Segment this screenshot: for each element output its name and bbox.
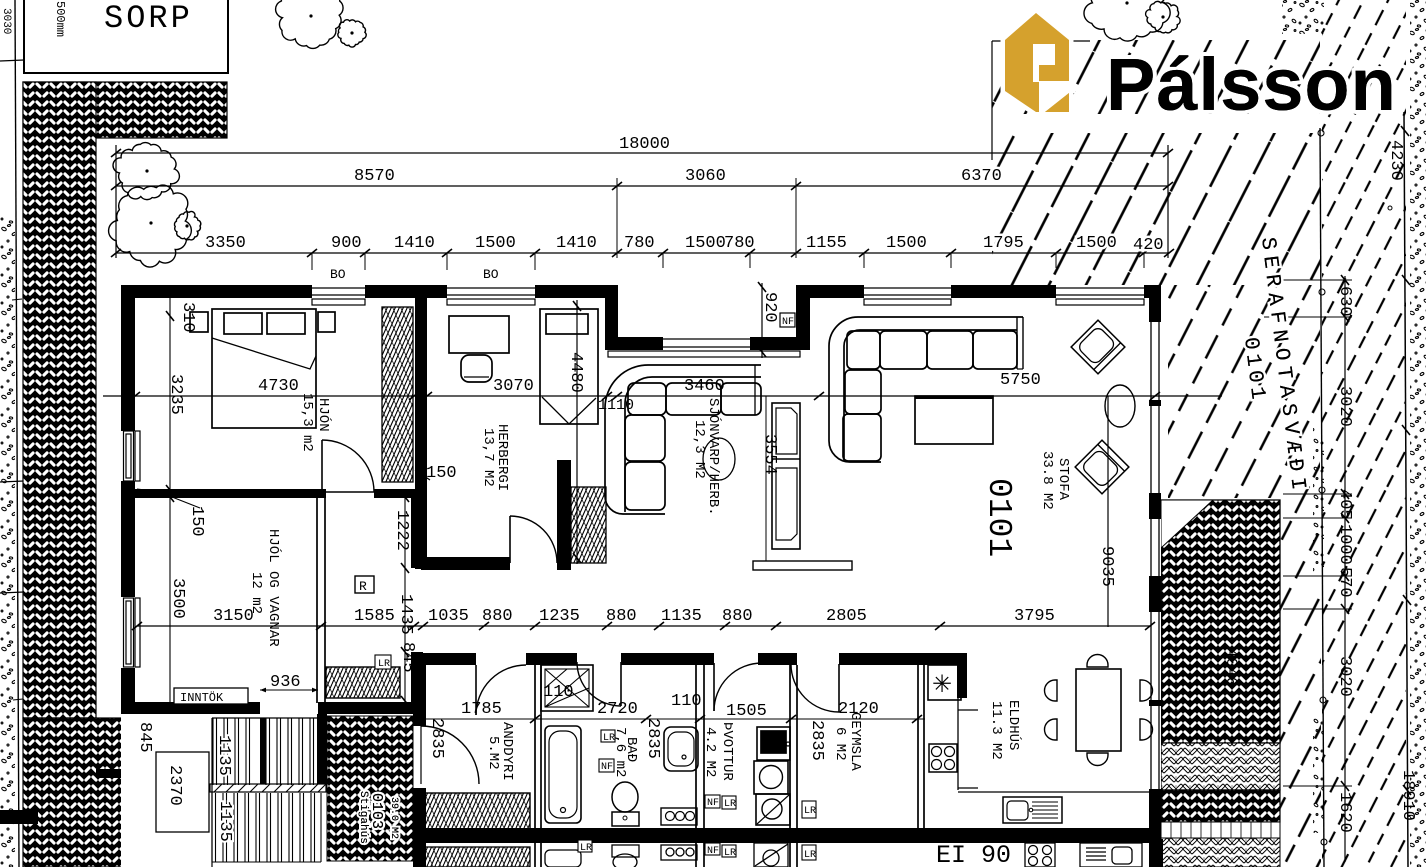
svg-text:3070: 3070	[493, 377, 534, 396]
svg-text:1620: 1620	[1335, 792, 1354, 833]
svg-text:1585: 1585	[354, 607, 395, 626]
svg-text:1410: 1410	[556, 234, 597, 253]
svg-text:4730: 4730	[258, 377, 299, 396]
svg-text:420: 420	[1133, 236, 1164, 255]
svg-text:845: 845	[135, 722, 154, 753]
svg-text:LR: LR	[724, 799, 736, 810]
svg-text:ÞVOTTUR: ÞVOTTUR	[719, 722, 735, 781]
svg-text:33.8 M2: 33.8 M2	[1039, 451, 1055, 510]
svg-text:18000: 18000	[619, 135, 670, 154]
svg-text:9035: 9035	[1097, 546, 1116, 587]
svg-text:150: 150	[187, 506, 206, 537]
svg-text:2835: 2835	[427, 718, 446, 759]
svg-text:1035: 1035	[428, 607, 469, 626]
svg-text:3350: 3350	[205, 234, 246, 253]
svg-text:1135: 1135	[215, 801, 234, 842]
svg-text:1235: 1235	[539, 607, 580, 626]
svg-text:BO: BO	[483, 267, 499, 282]
svg-text:2835: 2835	[643, 718, 662, 759]
svg-text:780: 780	[624, 234, 655, 253]
svg-text:1135: 1135	[661, 607, 702, 626]
svg-text:3460: 3460	[684, 377, 725, 396]
svg-text:0101: 0101	[980, 478, 1017, 557]
svg-text:8570: 8570	[354, 167, 395, 186]
svg-text:1000: 1000	[1335, 524, 1354, 565]
svg-text:3020: 3020	[1335, 386, 1354, 427]
svg-text:1135: 1135	[214, 735, 233, 776]
svg-text:R: R	[359, 579, 367, 594]
svg-text:4480: 4480	[566, 352, 585, 393]
svg-text:1500: 1500	[475, 234, 516, 253]
svg-text:EI 90: EI 90	[936, 841, 1011, 867]
svg-text:1505: 1505	[726, 702, 767, 721]
svg-text:6370: 6370	[961, 167, 1002, 186]
svg-text:2835: 2835	[807, 720, 826, 761]
svg-text:12 m2: 12 m2	[248, 572, 264, 614]
svg-text:880: 880	[482, 607, 513, 626]
svg-text:NF: NF	[601, 762, 613, 773]
svg-text:3060: 3060	[685, 167, 726, 186]
svg-text:110: 110	[671, 692, 702, 711]
svg-text:INNTÖK: INNTÖK	[180, 691, 224, 705]
svg-text:Pálsson: Pálsson	[1106, 43, 1397, 126]
svg-text:780: 780	[724, 234, 755, 253]
svg-text:900: 900	[331, 234, 362, 253]
svg-text:5.M2: 5.M2	[485, 736, 501, 770]
svg-text:3030: 3030	[0, 8, 12, 34]
svg-text:880: 880	[606, 607, 637, 626]
svg-text:4046: 4046	[1222, 648, 1240, 686]
svg-text:630: 630	[1335, 286, 1354, 317]
svg-text:1222: 1222	[392, 510, 411, 551]
svg-text:2370: 2370	[165, 765, 184, 806]
svg-text:LR: LR	[804, 850, 816, 861]
svg-text:NF: NF	[707, 798, 719, 809]
svg-text:570: 570	[1335, 567, 1354, 598]
svg-text:1795: 1795	[983, 234, 1024, 253]
svg-text:15,3 m2: 15,3 m2	[299, 393, 315, 452]
svg-text:150: 150	[426, 464, 457, 483]
svg-text:500mm: 500mm	[53, 1, 67, 37]
svg-text:39.0 M2: 39.0 M2	[388, 797, 399, 839]
svg-text:HJÓL OG VAGNAR: HJÓL OG VAGNAR	[265, 529, 283, 647]
svg-text:920: 920	[760, 292, 779, 323]
svg-text:LR: LR	[378, 659, 390, 670]
svg-text:✳: ✳	[932, 671, 952, 698]
svg-text:3150: 3150	[213, 607, 254, 626]
svg-text:18910: 18910	[1398, 770, 1417, 821]
svg-text:LR: LR	[603, 733, 615, 744]
svg-text:4.2 M2: 4.2 M2	[702, 727, 718, 777]
svg-text:1435: 1435	[396, 594, 415, 635]
svg-text:GEYMSLA: GEYMSLA	[847, 712, 863, 771]
svg-text:12,3 M2: 12,3 M2	[691, 420, 707, 479]
svg-text:6 M2: 6 M2	[832, 727, 848, 761]
svg-text:3795: 3795	[1014, 607, 1055, 626]
svg-text:310: 310	[178, 302, 197, 333]
svg-text:SORP: SORP	[104, 0, 193, 37]
svg-text:1500: 1500	[685, 234, 726, 253]
svg-text:1785: 1785	[461, 700, 502, 719]
svg-text:BO: BO	[330, 267, 346, 282]
svg-text:11.3 M2: 11.3 M2	[988, 701, 1004, 760]
svg-text:NF: NF	[707, 846, 719, 857]
svg-text:936: 936	[270, 673, 301, 692]
svg-text:NF: NF	[782, 317, 794, 328]
svg-text:STOFA: STOFA	[1055, 458, 1071, 501]
svg-text:HJÓN: HJÓN	[315, 398, 333, 432]
svg-text:880: 880	[722, 607, 753, 626]
svg-text:1500: 1500	[886, 234, 927, 253]
svg-text:1500: 1500	[1076, 234, 1117, 253]
svg-text:0103: 0103	[368, 793, 385, 829]
svg-text:3020: 3020	[1335, 656, 1354, 697]
svg-text:Stigahús: Stigahús	[357, 791, 369, 844]
svg-text:1155: 1155	[806, 234, 847, 253]
svg-text:13,7 M2: 13,7 M2	[480, 428, 496, 487]
svg-text:3500: 3500	[168, 578, 187, 619]
svg-text:ELDHÚS: ELDHÚS	[1005, 700, 1023, 750]
svg-text:LR: LR	[724, 848, 736, 859]
svg-text:405: 405	[1335, 489, 1354, 520]
svg-text:LR: LR	[580, 843, 592, 854]
svg-text:4230: 4230	[1386, 140, 1405, 181]
svg-text:5750: 5750	[1000, 371, 1041, 390]
svg-text:3235: 3235	[166, 374, 185, 415]
svg-text:1410: 1410	[394, 234, 435, 253]
svg-text:2805: 2805	[826, 607, 867, 626]
svg-text:LR: LR	[804, 806, 816, 817]
